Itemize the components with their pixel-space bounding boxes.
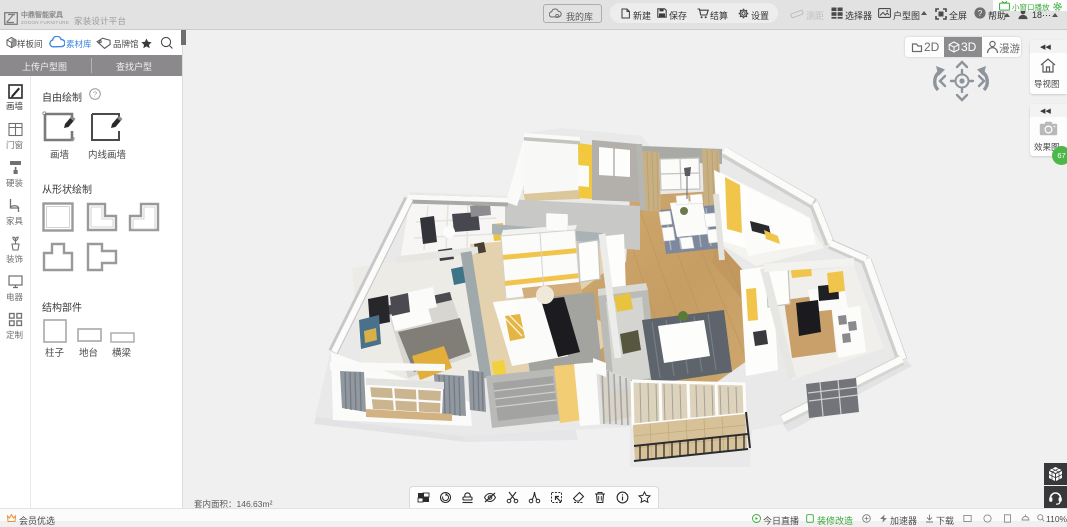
svg-text:?: ? xyxy=(93,90,97,99)
svg-text:?: ? xyxy=(978,9,983,18)
